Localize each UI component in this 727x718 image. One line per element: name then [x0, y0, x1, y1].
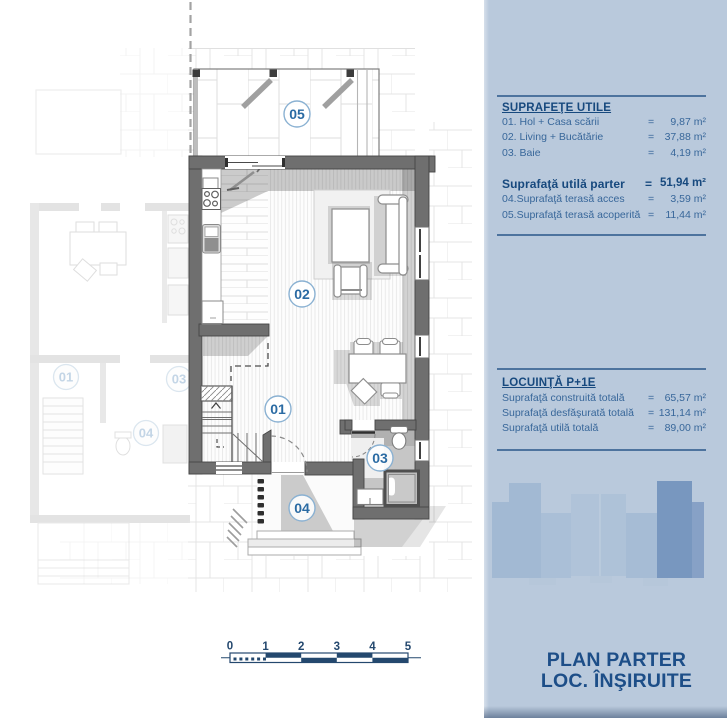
- svg-text:03: 03: [372, 450, 388, 466]
- svg-text:3: 3: [334, 641, 340, 653]
- svg-text:0: 0: [227, 641, 233, 653]
- svg-text:2: 2: [298, 641, 304, 653]
- svg-text:05: 05: [289, 106, 305, 122]
- svg-text:5: 5: [405, 641, 412, 653]
- svg-text:02: 02: [294, 286, 310, 302]
- svg-text:01: 01: [59, 370, 73, 385]
- svg-text:04: 04: [139, 426, 154, 441]
- svg-text:1: 1: [262, 641, 269, 653]
- svg-text:01: 01: [270, 401, 286, 417]
- svg-text:4: 4: [369, 641, 376, 653]
- svg-text:03: 03: [172, 372, 186, 387]
- svg-text:04: 04: [294, 500, 310, 516]
